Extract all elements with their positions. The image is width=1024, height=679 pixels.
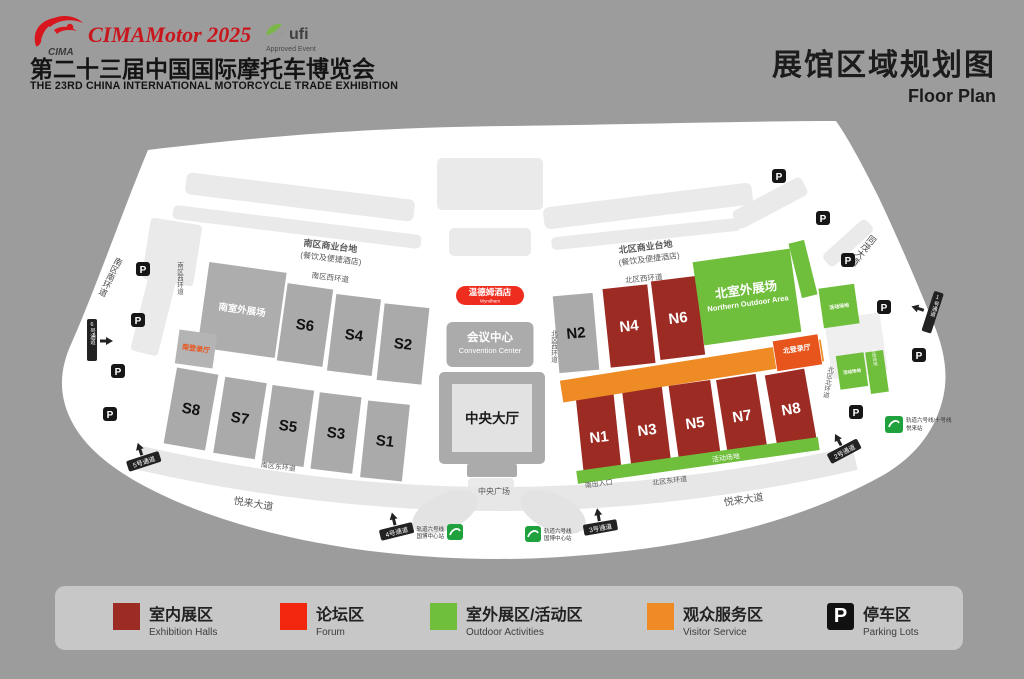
parking-icon: P: [136, 262, 150, 276]
convention-center-label-en: Convention Center: [459, 346, 522, 355]
hall-label: S2: [393, 335, 413, 354]
hall-label: S8: [180, 400, 201, 420]
svg-text:P: P: [853, 408, 860, 419]
metro-line-label: 轨道六号线: [544, 527, 572, 535]
floor-plan-map: 南室外展场 南登录厅 S6 S4 S2 S8 S7 S5 S3 S1 N2 N4…: [0, 0, 1024, 679]
crt-metro-logo: [447, 524, 463, 540]
south-registration-hall: 南登录厅: [175, 330, 217, 369]
legend-label-en: Outdoor Activities: [466, 627, 582, 638]
svg-text:P: P: [135, 316, 142, 327]
activity-box-2: 活动场地: [836, 352, 868, 390]
hall-label: N2: [566, 324, 587, 343]
parking-icon: P: [772, 169, 786, 183]
hall-s1: S1: [360, 401, 410, 482]
hall-label: N1: [589, 428, 610, 447]
crt-metro-logo: [885, 416, 903, 433]
svg-text:P: P: [820, 214, 827, 225]
legend-label-cn: 观众服务区: [683, 601, 763, 625]
hall-label: S6: [295, 316, 316, 335]
hall-label: S5: [278, 417, 299, 436]
svg-text:P: P: [115, 367, 122, 378]
legend-label-cn: 室内展区: [149, 601, 217, 625]
hall-label: N3: [637, 421, 658, 440]
legend-label-cn: 论坛区: [316, 601, 364, 625]
svg-text:P: P: [140, 265, 147, 276]
northern-outdoor-area: 北室外展场 Northern Outdoor Area: [693, 249, 802, 346]
legend-swatch-parking: P: [827, 603, 854, 630]
hall-label: S4: [344, 326, 365, 345]
svg-text:P: P: [881, 303, 888, 314]
parking-icon: P: [131, 313, 145, 327]
legend-swatch-outdoor: [430, 603, 457, 630]
metro-station-guobo-east: 轨道六号线 国博中心站: [525, 526, 572, 542]
legend-label-en: Visitor Service: [683, 627, 763, 638]
svg-text:P: P: [916, 351, 923, 362]
hall-label: N5: [684, 414, 705, 434]
legend: 室内展区 Exhibition Halls 论坛区 Forum 室外展区/活动区…: [55, 586, 963, 650]
crt-metro-logo: [525, 526, 541, 542]
legend-label-cn: 停车区: [863, 601, 919, 625]
hall-label: N6: [668, 309, 689, 328]
central-plaza-label: 中央广场: [478, 486, 510, 496]
legend-item-outdoor: 室外展区/活动区 Outdoor Activities: [430, 601, 582, 638]
legend-label-en: Exhibition Halls: [149, 627, 217, 638]
metro-station-label: 国博中心站: [416, 532, 444, 540]
hall-label: N7: [731, 407, 753, 427]
convention-center-label-cn: 会议中心: [466, 330, 513, 344]
parking-icon: P: [111, 364, 125, 378]
metro-line-label: 轨道六号线: [416, 525, 444, 533]
wyndham-hotel-label-en: Wyndham: [480, 299, 500, 304]
parking-icon: P: [877, 300, 891, 314]
parking-icon: P: [849, 405, 863, 419]
legend-item-exhibition-halls: 室内展区 Exhibition Halls: [113, 601, 217, 638]
svg-text:P: P: [845, 256, 852, 267]
hall-label: N8: [780, 399, 802, 419]
parking-icon: P: [816, 211, 830, 225]
hall-label: S7: [230, 409, 251, 429]
metro-station-label: 悦来站: [906, 424, 923, 432]
gate-label: 6号通道: [89, 322, 96, 346]
wyndham-hotel-label-cn: 温德姆酒店: [469, 287, 512, 297]
parking-icon: P: [103, 407, 117, 421]
metro-line-label: 轨道六号线/十号线: [906, 416, 952, 424]
convention-center-shape: [447, 322, 534, 367]
hall-label: N4: [619, 317, 641, 336]
parking-icon: P: [841, 253, 855, 267]
activity-box-1: 活动场地: [818, 284, 859, 329]
central-hall-stem: [467, 464, 517, 477]
central-hall-label: 中央大厅: [465, 410, 519, 426]
hall-label: S3: [326, 424, 346, 443]
legend-swatch-exhibition: [113, 603, 140, 630]
legend-label-cn: 室外展区/活动区: [466, 601, 582, 625]
legend-item-visitor-service: 观众服务区 Visitor Service: [647, 601, 763, 638]
legend-label-en: Forum: [316, 627, 364, 638]
legend-item-parking: P 停车区 Parking Lots: [827, 601, 919, 638]
legend-swatch-forum: [280, 603, 307, 630]
legend-label-en: Parking Lots: [863, 627, 919, 638]
hall-s4: S4: [327, 294, 381, 376]
hall-n4: N4: [602, 284, 655, 367]
legend-item-forum: 论坛区 Forum: [280, 601, 364, 638]
metro-station-label: 国博中心站: [544, 534, 572, 542]
parking-symbol: P: [834, 605, 847, 628]
svg-text:P: P: [776, 172, 783, 183]
svg-text:P: P: [107, 410, 114, 421]
floor-plan-page: { "page": { "background": "#9C9C9C" }, "…: [0, 0, 1024, 679]
hall-s2: S2: [377, 303, 430, 384]
metro-station-guobo-west: 轨道六号线 国博中心站: [416, 524, 463, 540]
parking-icon: P: [912, 348, 926, 362]
legend-swatch-visitor: [647, 603, 674, 630]
hall-n2: N2: [553, 293, 600, 373]
hall-label: S1: [375, 432, 395, 451]
